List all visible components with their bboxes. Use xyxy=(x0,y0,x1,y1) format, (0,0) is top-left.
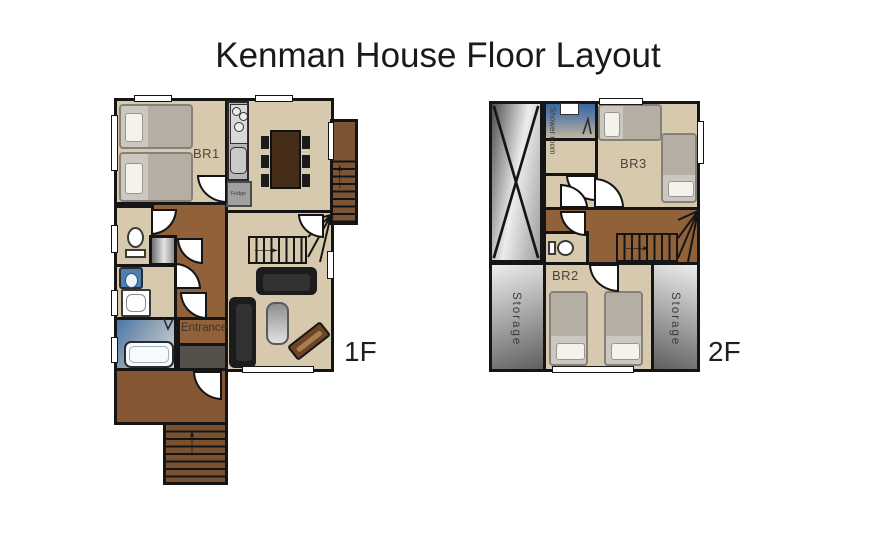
bed-blanket xyxy=(148,106,191,147)
toilet-icon xyxy=(127,227,144,248)
bed-blanket xyxy=(148,154,191,200)
window xyxy=(255,95,293,102)
bathtub-icon xyxy=(124,341,174,368)
kitchen-sink-icon xyxy=(230,147,247,174)
window xyxy=(111,225,118,253)
room-label-br2: BR2 xyxy=(552,268,579,283)
window xyxy=(111,337,118,363)
sofa xyxy=(229,297,256,368)
toilet-icon xyxy=(557,240,574,256)
shower-mixer-icon xyxy=(162,317,175,331)
room-label-shower: Shower room xyxy=(548,107,557,177)
floor-label-1f: 1F xyxy=(344,336,377,368)
shower-mixer-icon xyxy=(580,116,594,136)
entrance-step xyxy=(177,343,228,371)
room-label-entrance: Entrance xyxy=(181,322,227,334)
bed xyxy=(604,291,643,366)
bed-blanket xyxy=(551,293,586,336)
window xyxy=(111,115,118,171)
exterior-stair-up-arrow-icon: ↑ xyxy=(336,156,344,195)
fridge: Fridge xyxy=(226,181,252,207)
room-label-storage-left: Storage xyxy=(510,292,522,352)
dining-chair xyxy=(261,174,269,187)
fridge-label: Fridge xyxy=(231,191,246,196)
bed-blanket xyxy=(623,106,660,139)
window xyxy=(242,366,314,373)
bed xyxy=(119,152,193,202)
dining-chair xyxy=(302,136,310,149)
dining-chair xyxy=(302,174,310,187)
bed-pillow xyxy=(668,181,694,197)
bed-blanket xyxy=(663,135,695,175)
room-label-br1: BR1 xyxy=(193,146,220,161)
floor-label-2f: 2F xyxy=(708,336,741,368)
stairs-up-arrow-icon: → xyxy=(618,239,656,255)
dining-chair xyxy=(261,155,269,168)
sofa xyxy=(256,267,317,295)
bed-blanket xyxy=(606,293,641,336)
window xyxy=(134,95,172,102)
void-x-mark xyxy=(492,104,540,260)
door-opening xyxy=(328,122,334,160)
page-title: Kenman House Floor Layout xyxy=(0,36,876,76)
coffee-table xyxy=(266,302,289,345)
dining-chair xyxy=(261,136,269,149)
floor-plan-canvas: Kenman House Floor Layout → ↑ ↑ xyxy=(0,0,876,534)
void-area xyxy=(489,101,543,263)
bed-pillow xyxy=(556,343,585,360)
washbasin-icon xyxy=(119,267,143,289)
storage-cabinet xyxy=(149,235,177,266)
stove-icon xyxy=(230,104,248,144)
bed xyxy=(598,104,662,141)
bed-pillow xyxy=(125,113,143,142)
bed xyxy=(119,104,193,149)
exterior-stair-top xyxy=(330,119,358,225)
stairs-up-arrow-icon: → xyxy=(247,241,285,257)
window xyxy=(697,121,704,164)
bed xyxy=(549,291,588,366)
room-label-storage-right: Storage xyxy=(669,292,681,352)
dining-chair xyxy=(302,155,310,168)
bed xyxy=(661,133,697,203)
room-label-br3: BR3 xyxy=(620,156,647,171)
toilet-tank-icon xyxy=(125,249,146,258)
window xyxy=(599,98,643,105)
washing-machine-icon xyxy=(121,289,151,317)
bed-pillow xyxy=(125,163,143,194)
entry-steps-up-arrow-icon: ↑ xyxy=(188,423,196,465)
bed-pillow xyxy=(611,343,640,360)
window xyxy=(327,251,334,279)
window xyxy=(111,290,118,316)
kitchen-counter xyxy=(227,101,249,181)
toilet-tank-icon xyxy=(548,241,556,255)
shower-tray-icon xyxy=(560,103,579,115)
stairs-2f-winder xyxy=(676,208,700,264)
bed-pillow xyxy=(604,112,620,137)
dining-table xyxy=(270,130,301,189)
window xyxy=(552,366,634,373)
